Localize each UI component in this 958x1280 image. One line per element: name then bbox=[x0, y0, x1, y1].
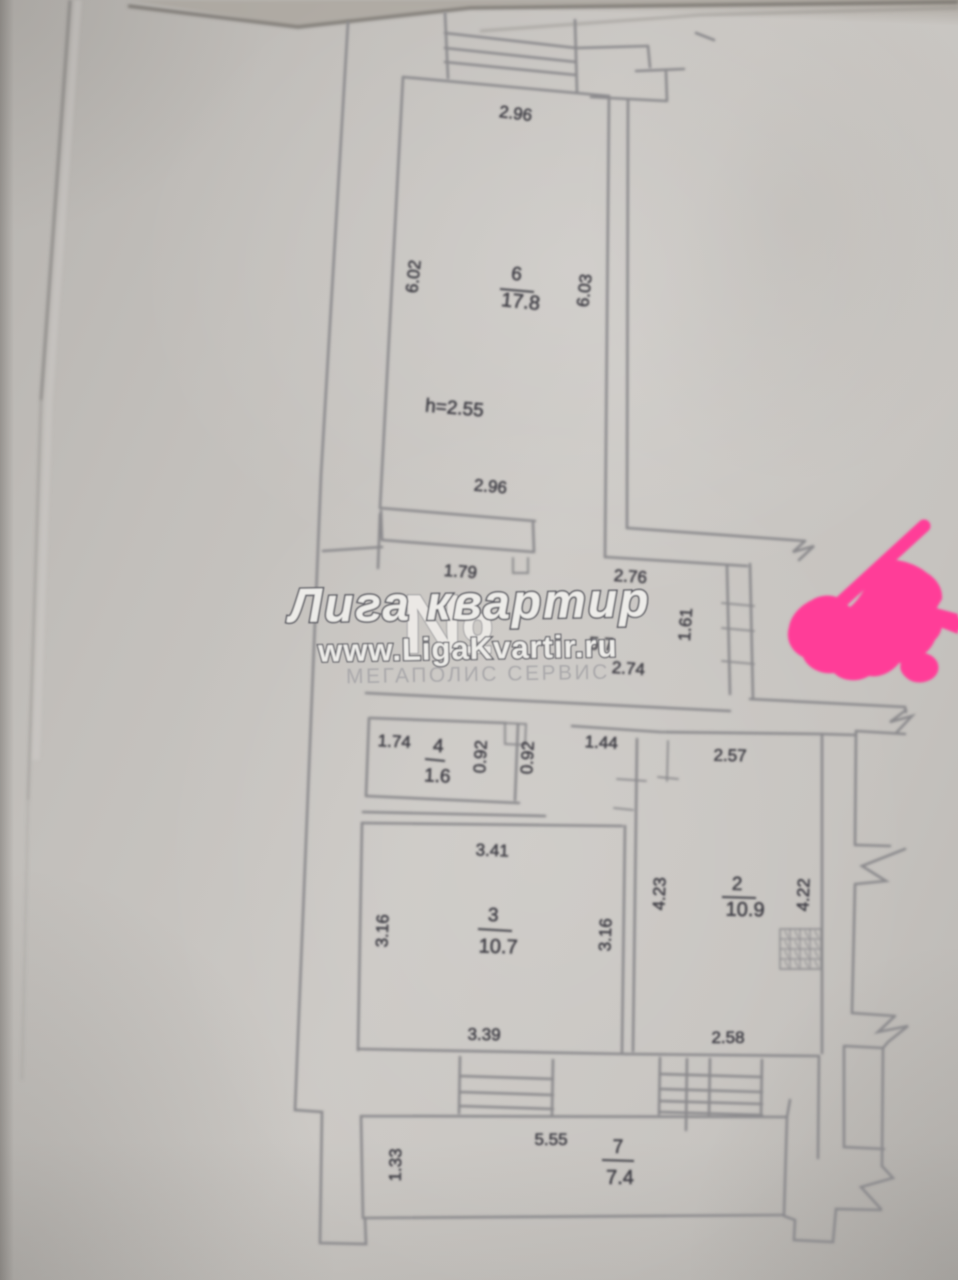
svg-text:3.16: 3.16 bbox=[372, 914, 392, 948]
svg-text:6: 6 bbox=[510, 264, 523, 286]
svg-text:7.4: 7.4 bbox=[606, 1167, 634, 1189]
svg-text:2: 2 bbox=[732, 874, 743, 895]
svg-text:2.96: 2.96 bbox=[473, 476, 508, 498]
svg-text:3.16: 3.16 bbox=[595, 918, 615, 952]
svg-text:1.6: 1.6 bbox=[424, 765, 451, 787]
svg-text:3: 3 bbox=[488, 905, 499, 926]
svg-text:МЕГАПОЛИС СЕРВИС: МЕГАПОЛИС СЕРВИС bbox=[346, 661, 610, 689]
svg-text:2.96: 2.96 bbox=[498, 102, 533, 125]
svg-text:4.22: 4.22 bbox=[793, 878, 813, 912]
svg-text:2.58: 2.58 bbox=[711, 1028, 744, 1047]
svg-text:6.03: 6.03 bbox=[573, 273, 595, 308]
svg-text:h=2.55: h=2.55 bbox=[424, 396, 484, 422]
svg-text:0.92: 0.92 bbox=[470, 740, 491, 774]
svg-text:7: 7 bbox=[613, 1137, 624, 1158]
svg-text:1.33: 1.33 bbox=[386, 1148, 406, 1181]
svg-text:1.44: 1.44 bbox=[584, 732, 618, 753]
svg-text:10.7: 10.7 bbox=[478, 935, 518, 958]
svg-text:3.41: 3.41 bbox=[475, 840, 509, 860]
svg-text:Лига квартир: Лига квартир bbox=[286, 574, 651, 633]
svg-text:1.61: 1.61 bbox=[675, 607, 696, 641]
svg-text:5.55: 5.55 bbox=[534, 1130, 567, 1149]
svg-text:10.9: 10.9 bbox=[725, 899, 764, 922]
svg-text:2.57: 2.57 bbox=[713, 746, 746, 766]
svg-text:6.02: 6.02 bbox=[402, 259, 424, 294]
svg-text:0.92: 0.92 bbox=[517, 741, 538, 775]
svg-text:3.39: 3.39 bbox=[467, 1025, 500, 1045]
svg-text:1.74: 1.74 bbox=[377, 731, 411, 752]
svg-text:4.23: 4.23 bbox=[649, 877, 669, 911]
svg-text:17.8: 17.8 bbox=[500, 289, 541, 315]
svg-text:4: 4 bbox=[432, 736, 444, 758]
